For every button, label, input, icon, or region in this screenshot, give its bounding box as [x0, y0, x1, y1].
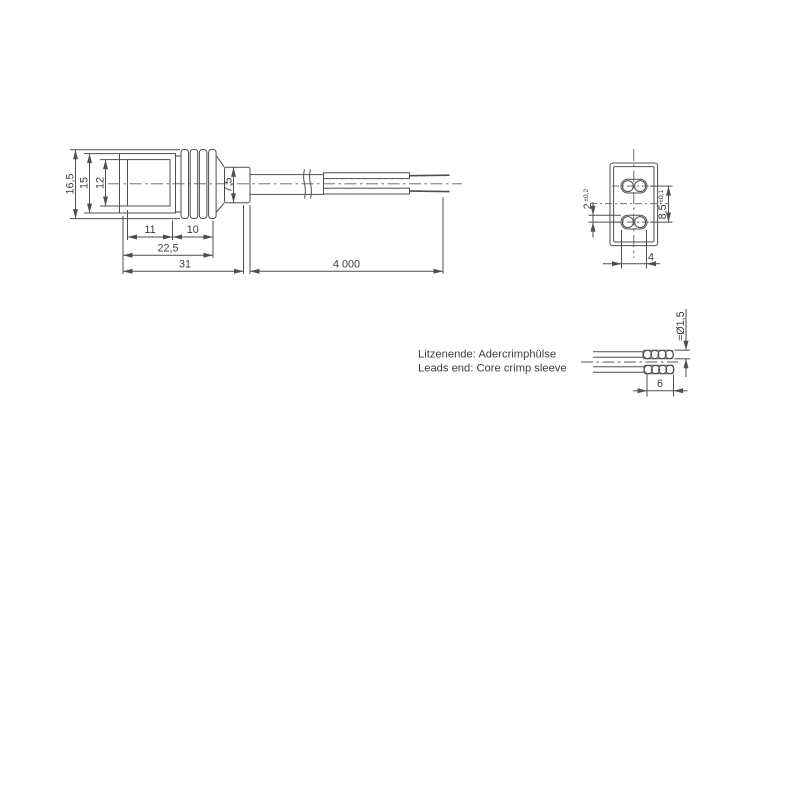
dim-body-length: 11 [128, 224, 173, 237]
crimp-detail: ≈Ø1,5 6 [581, 309, 690, 397]
dim-label-cable-length: 4 000 [333, 258, 360, 270]
dim-label-slot-height: 2±0,2 [582, 188, 594, 209]
dim-label-body-height: 15 [79, 177, 91, 189]
dim-label-gland-diameter: 7,5 [223, 177, 235, 192]
dim-cable-length: 4 000 [250, 258, 443, 271]
dim-sleeve-length: 6 [633, 375, 688, 397]
notes: Litzenende: Adercrimphülse Leads end: Co… [418, 349, 567, 375]
dim-ribs-length: 10 [173, 224, 214, 237]
dim-label-total-length: 31 [179, 258, 191, 270]
dim-front-length: 22,5 [123, 242, 213, 255]
side-view: 16,5 15 12 7,5 [65, 150, 463, 275]
note-line-german: Litzenende: Adercrimphülse [418, 349, 556, 361]
dim-label-ribs-length: 10 [187, 224, 199, 236]
detail-lead-bottom [593, 367, 644, 373]
detail-lead-top [593, 352, 643, 358]
dim-slot-height: 2±0,2 [582, 188, 621, 237]
dim-label-contact-pitch: 8,5±0,1 [657, 189, 669, 219]
drawing-canvas: 16,5 15 12 7,5 [0, 0, 800, 800]
front-view: 8,5±0,1 2±0,2 4 [582, 149, 673, 269]
bare-wire-bottom [410, 191, 450, 192]
dim-label-sleeve-length: 6 [657, 378, 663, 390]
crimp-sleeve-top [643, 350, 674, 359]
dim-total-length: 31 [123, 258, 244, 271]
note-line-english: Leads end: Core crimp sleeve [418, 363, 567, 375]
dim-label-front-length: 22,5 [157, 242, 178, 254]
dim-label-body-length: 11 [144, 224, 155, 236]
bare-wire-top [410, 175, 450, 176]
lead-top [324, 173, 410, 179]
dim-label-sleeve-diameter: ≈Ø1,5 [675, 311, 687, 340]
dim-label-inner-height: 12 [95, 177, 107, 189]
dim-label-overall-height: 16,5 [65, 173, 77, 194]
technical-drawing: 16,5 15 12 7,5 [0, 0, 800, 800]
dim-label-contact-spacing: 4 [648, 252, 654, 264]
lead-bottom [324, 188, 410, 194]
crimp-sleeve-bottom [644, 365, 674, 374]
dim-contact-spacing: 4 [603, 230, 660, 269]
dim-sleeve-diameter: ≈Ø1,5 [675, 309, 691, 377]
cable [250, 175, 324, 195]
